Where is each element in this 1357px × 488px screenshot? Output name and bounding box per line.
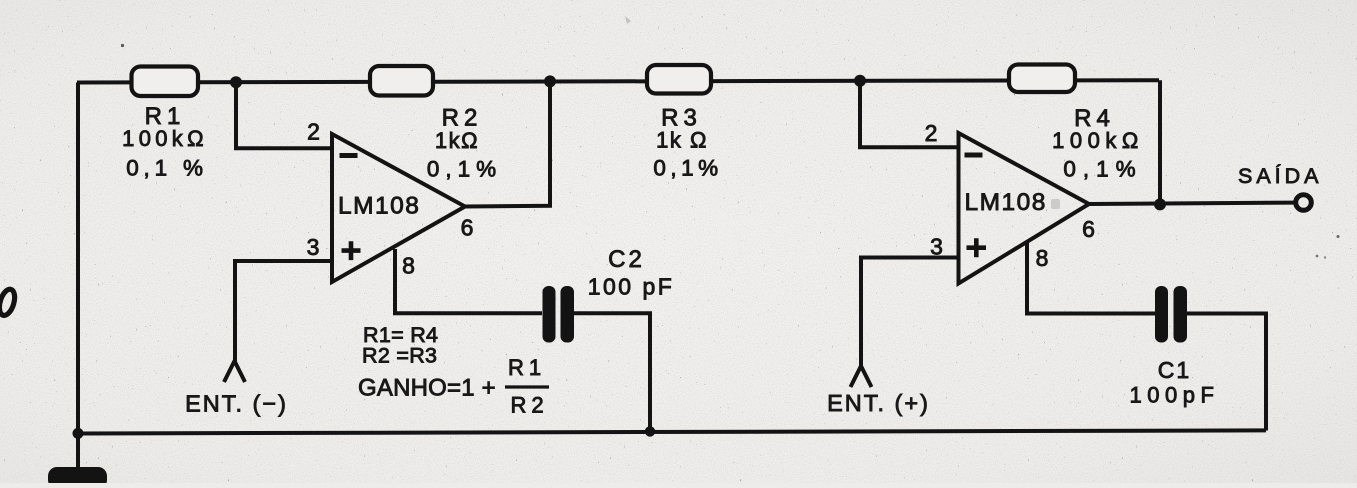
svg-text:100kΩ: 100kΩ	[1052, 128, 1144, 153]
svg-text:0,1%: 0,1%	[427, 157, 502, 182]
svg-text:100pF: 100pF	[1130, 383, 1220, 408]
svg-text:ENT. (−): ENT. (−)	[185, 391, 288, 417]
svg-text:8: 8	[1036, 245, 1049, 271]
svg-text:2: 2	[925, 120, 938, 146]
svg-text:LM108: LM108	[965, 189, 1047, 216]
svg-text:2: 2	[307, 119, 320, 145]
svg-text:3: 3	[307, 234, 320, 260]
svg-text:R2: R2	[510, 393, 548, 418]
svg-text:R2 =R3: R2 =R3	[362, 344, 437, 368]
svg-text:0,1 %: 0,1 %	[126, 156, 208, 181]
svg-text:0,1%: 0,1%	[653, 156, 722, 181]
svg-text:6: 6	[461, 215, 474, 241]
svg-text:100 pF: 100 pF	[588, 274, 675, 300]
svg-text:6: 6	[1082, 216, 1095, 242]
svg-text:C1: C1	[1158, 357, 1191, 383]
svg-text:100kΩ: 100kΩ	[122, 126, 208, 151]
svg-text:0,1%: 0,1%	[1063, 157, 1142, 182]
svg-text:SAÍDA: SAÍDA	[1238, 163, 1323, 188]
svg-text:1k Ω: 1k Ω	[656, 128, 708, 153]
svg-text:LM108: LM108	[338, 193, 420, 220]
svg-text:R1: R1	[508, 355, 546, 380]
svg-text:C2: C2	[608, 246, 645, 273]
svg-text:3: 3	[930, 234, 943, 260]
svg-text:ENT. (+): ENT. (+)	[827, 390, 930, 416]
svg-text:1kΩ: 1kΩ	[435, 128, 479, 153]
svg-text:GANHO=1 +: GANHO=1 +	[358, 375, 496, 402]
svg-text:8: 8	[402, 253, 415, 279]
